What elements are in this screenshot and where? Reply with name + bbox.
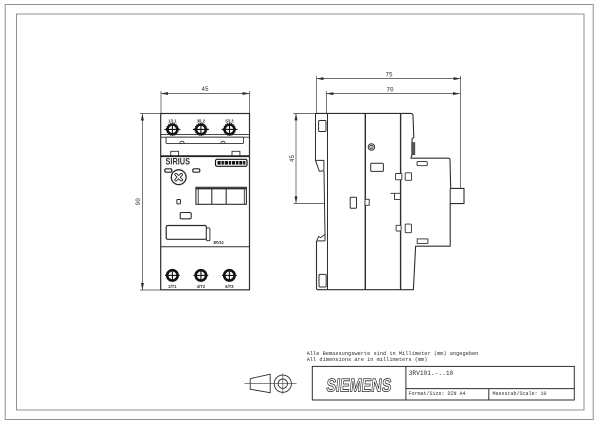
svg-text:SIEMENS: SIEMENS <box>325 375 392 396</box>
svg-text:Massstab/Scale: 10: Massstab/Scale: 10 <box>493 391 547 397</box>
svg-text:Alle Bemassungswerte sind in M: Alle Bemassungswerte sind in Millimeter … <box>307 351 479 357</box>
svg-text:Format/Size: DIN A4: Format/Size: DIN A4 <box>409 391 466 397</box>
svg-text:All dimensions are in millimet: All dimensions are in millimeters (mm) <box>307 357 428 363</box>
svg-text:45: 45 <box>289 155 296 163</box>
svg-text:SIRIUS: SIRIUS <box>166 156 191 166</box>
svg-text:70: 70 <box>386 86 394 93</box>
svg-text:90: 90 <box>135 198 142 206</box>
svg-text:3RV101.-..10: 3RV101.-..10 <box>409 370 454 377</box>
svg-text:45: 45 <box>201 86 209 93</box>
svg-text:2/T1: 2/T1 <box>168 284 176 290</box>
svg-text:4/T2: 4/T2 <box>197 284 205 290</box>
svg-text:6/T3: 6/T3 <box>225 284 233 290</box>
svg-text:75: 75 <box>385 71 393 78</box>
svg-text:3RV10: 3RV10 <box>213 240 224 245</box>
